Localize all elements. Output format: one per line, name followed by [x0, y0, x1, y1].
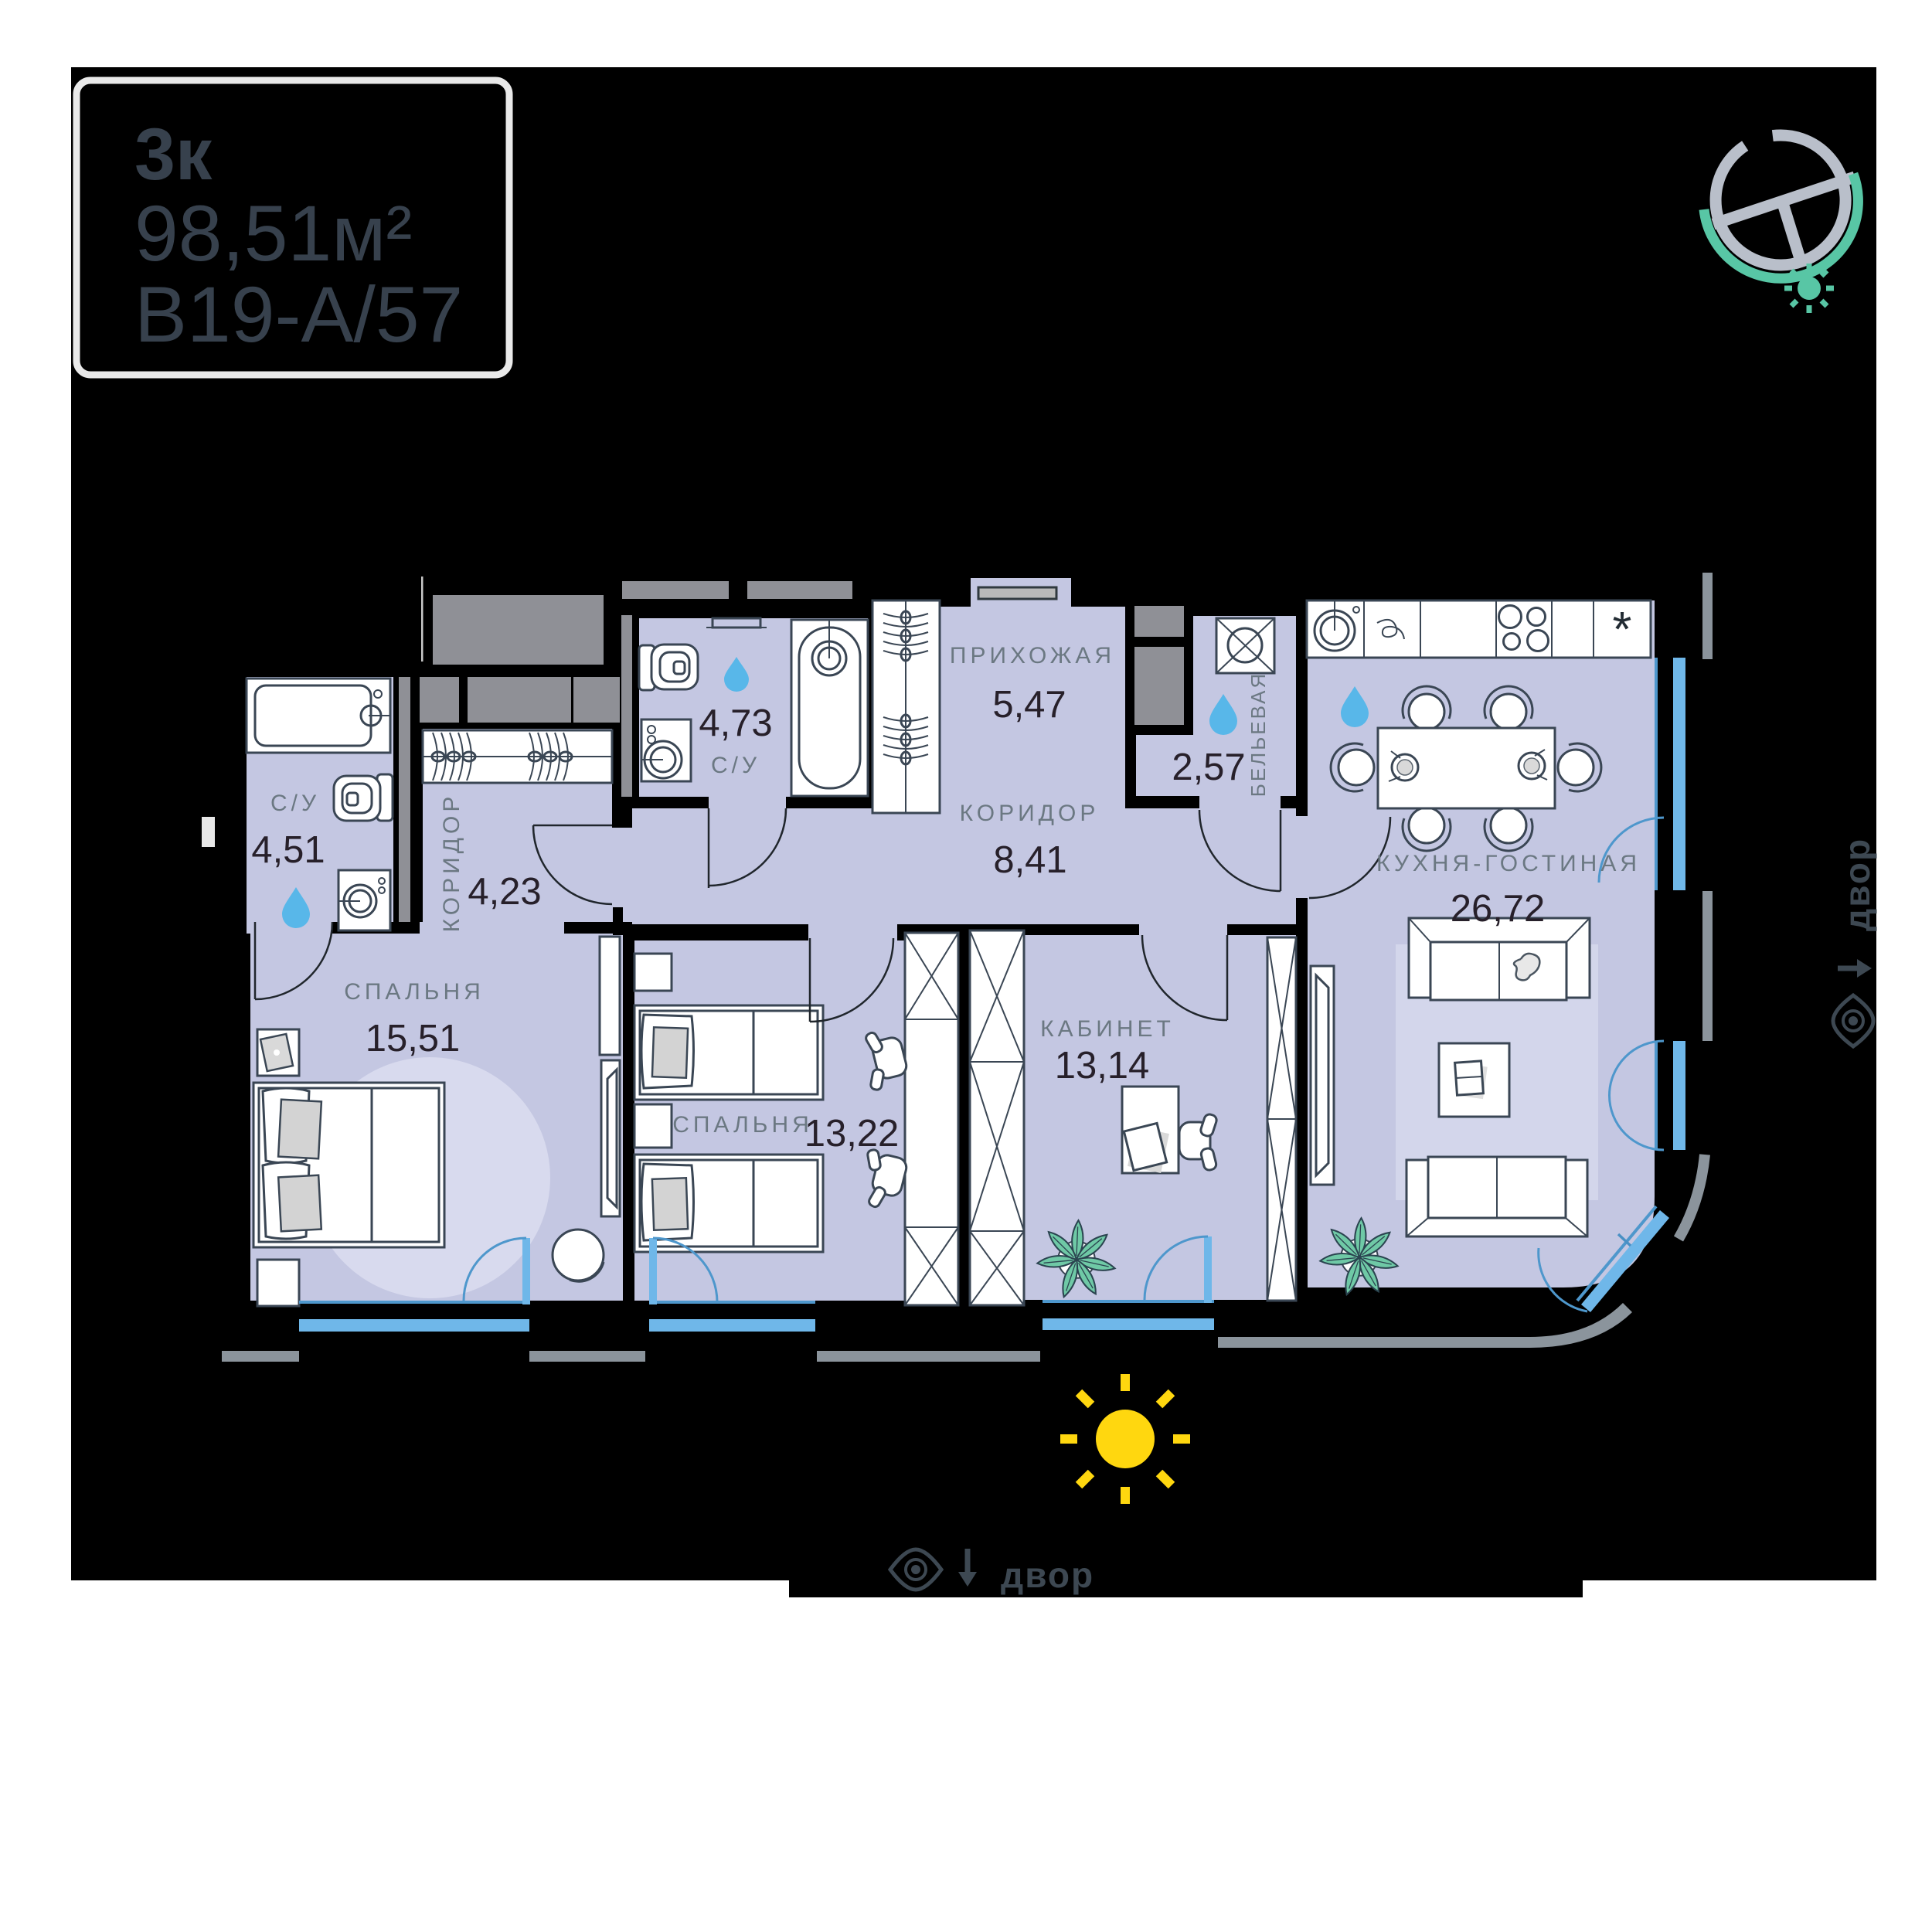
svg-text:БЕЛЬЕВАЯ: БЕЛЬЕВАЯ [1247, 672, 1270, 797]
svg-text:СПАЛЬНЯ: СПАЛЬНЯ [344, 979, 485, 1005]
svg-text:двор: двор [1001, 1555, 1094, 1595]
svg-text:*: * [1613, 601, 1632, 657]
svg-text:В19-А/57: В19-А/57 [134, 270, 463, 359]
svg-text:98,51м²: 98,51м² [134, 189, 412, 277]
svg-text:4,73: 4,73 [699, 702, 772, 744]
svg-text:КАБИНЕТ: КАБИНЕТ [1040, 1016, 1175, 1042]
svg-text:3к: 3к [134, 114, 213, 196]
svg-text:СПАЛЬНЯ: СПАЛЬНЯ [672, 1112, 813, 1138]
svg-text:5,47: 5,47 [992, 684, 1066, 726]
svg-text:С/У: С/У [711, 753, 760, 778]
svg-text:КОРИДОР: КОРИДОР [960, 801, 1100, 826]
svg-text:8,41: 8,41 [993, 839, 1066, 881]
svg-text:С/У: С/У [270, 791, 320, 816]
svg-text:13,14: 13,14 [1055, 1045, 1150, 1087]
svg-text:2,57: 2,57 [1172, 747, 1245, 788]
svg-text:КОРИДОР: КОРИДОР [439, 793, 464, 933]
svg-text:КУХНЯ-ГОСТИНАЯ: КУХНЯ-ГОСТИНАЯ [1376, 851, 1641, 876]
svg-text:ПРИХОЖАЯ: ПРИХОЖАЯ [950, 643, 1115, 668]
svg-text:13,22: 13,22 [804, 1113, 900, 1155]
svg-text:4,51: 4,51 [251, 829, 325, 871]
svg-text:4,23: 4,23 [468, 871, 541, 913]
svg-text:15,51: 15,51 [366, 1018, 461, 1060]
svg-text:двор: двор [1837, 838, 1877, 931]
svg-text:26,72: 26,72 [1451, 888, 1546, 930]
